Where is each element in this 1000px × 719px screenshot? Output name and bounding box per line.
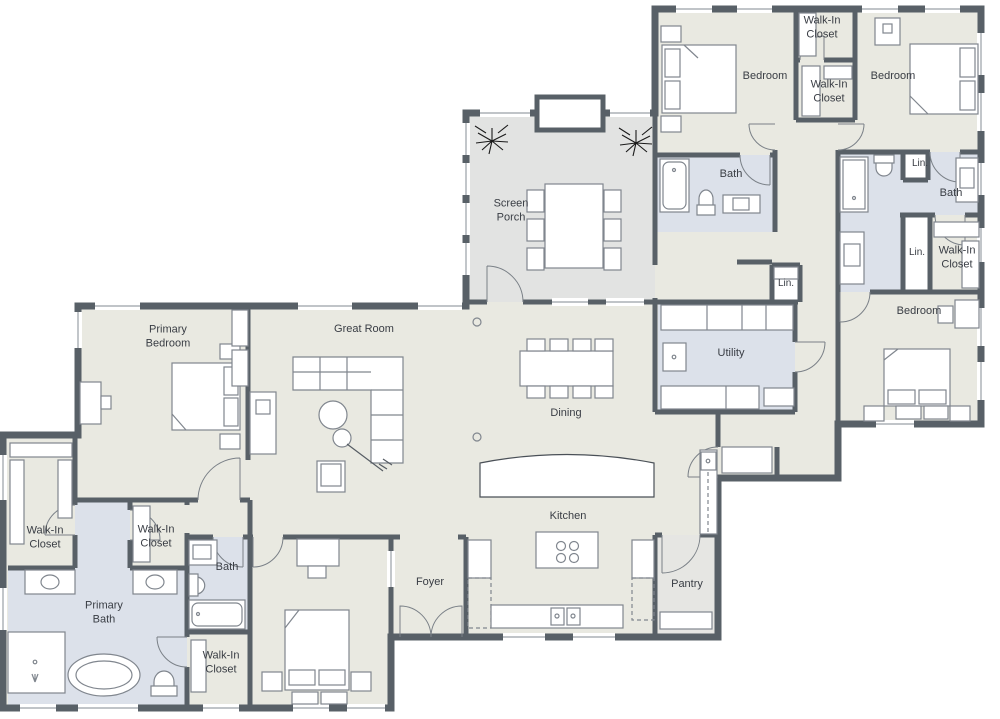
porch-table [545, 184, 603, 268]
closet-shelf [191, 640, 206, 692]
closet-shelf [802, 66, 820, 116]
nightstand [864, 406, 884, 421]
drain [853, 197, 856, 200]
dining-chair [527, 386, 545, 398]
kitchen-counter [468, 540, 491, 578]
shower-drain [33, 660, 37, 664]
desk-chair [308, 566, 326, 578]
bathtub [68, 654, 140, 696]
bench [321, 692, 347, 704]
pillow [960, 48, 975, 77]
closet-shelf [58, 460, 72, 518]
dining-chair [550, 386, 568, 398]
counter [661, 305, 793, 330]
dining-table [520, 351, 613, 386]
bench [896, 406, 921, 419]
bench [292, 692, 318, 704]
closet-shelf [962, 241, 979, 288]
dining-chair [550, 339, 568, 351]
sink [733, 198, 749, 210]
built-in [232, 350, 248, 386]
vanity [133, 570, 177, 594]
drain [197, 613, 200, 616]
sink [960, 168, 974, 188]
mudroom-bench [722, 447, 772, 473]
armchair-inner [321, 464, 341, 486]
dining-chair [527, 339, 545, 351]
screen-porch-furniture [527, 184, 621, 270]
nightstand [661, 26, 681, 42]
toilet [697, 190, 715, 215]
linen-right-floor [903, 215, 930, 292]
porch-chair [604, 248, 621, 270]
cooktop-island [536, 532, 598, 568]
floor-plan: Walk-In Closet Bedroom Walk-In Closet Be… [0, 0, 1000, 719]
desk [297, 539, 339, 566]
media-cabinet-inner [256, 400, 270, 414]
closet-shelf [10, 443, 72, 457]
pillow [888, 390, 915, 404]
dishwasher [551, 608, 564, 625]
closet-shelf [133, 506, 150, 562]
pillow [665, 81, 680, 109]
porch-chair [527, 248, 544, 270]
drain [673, 169, 676, 172]
prep-sink [701, 452, 716, 470]
counter [764, 388, 794, 406]
sink [193, 545, 211, 559]
closet-shelf [824, 66, 852, 79]
nightstand [950, 406, 970, 421]
dining-furniture [520, 339, 613, 398]
porch-chair [604, 219, 621, 241]
dresser [80, 382, 101, 424]
closet-shelf [799, 13, 816, 56]
dresser-knob [101, 396, 111, 409]
closet-shelf [10, 460, 24, 544]
shower-inner [843, 160, 865, 209]
dining-chair [595, 386, 613, 398]
floor-plan-drawing [0, 0, 1000, 719]
porch-chair [527, 219, 544, 241]
desk [955, 300, 979, 328]
pillow [289, 670, 315, 685]
kitchen-island-bar [480, 455, 654, 498]
pillow [960, 81, 975, 110]
sink [844, 244, 860, 266]
bench [924, 406, 948, 419]
pillow [319, 670, 345, 685]
nightstand [262, 672, 282, 691]
dining-chair [573, 339, 591, 351]
pillow [919, 390, 946, 404]
porch-chimney [537, 97, 603, 130]
porch-chair [527, 190, 544, 212]
linen-top-floor [903, 152, 928, 180]
pillow [665, 49, 680, 77]
counter [661, 386, 759, 409]
dresser-knob [883, 24, 892, 33]
nightstand [220, 434, 240, 449]
dining-chair [573, 386, 591, 398]
sink [567, 608, 580, 625]
toilet [874, 155, 894, 176]
closet-shelf [774, 267, 798, 279]
dining-chair [595, 339, 613, 351]
desk-chair [938, 306, 953, 323]
closet-shelf [934, 222, 979, 237]
porch-chair [604, 190, 621, 212]
pantry-shelf [660, 612, 712, 629]
built-in [232, 310, 248, 346]
kitchen-counter [632, 540, 654, 578]
round-chair [319, 401, 347, 429]
vanity [25, 570, 75, 594]
washer-dot [672, 355, 676, 359]
pillow [224, 398, 238, 426]
nightstand [661, 116, 681, 132]
nightstand [351, 672, 371, 691]
linen-hall-shelf [774, 267, 798, 279]
